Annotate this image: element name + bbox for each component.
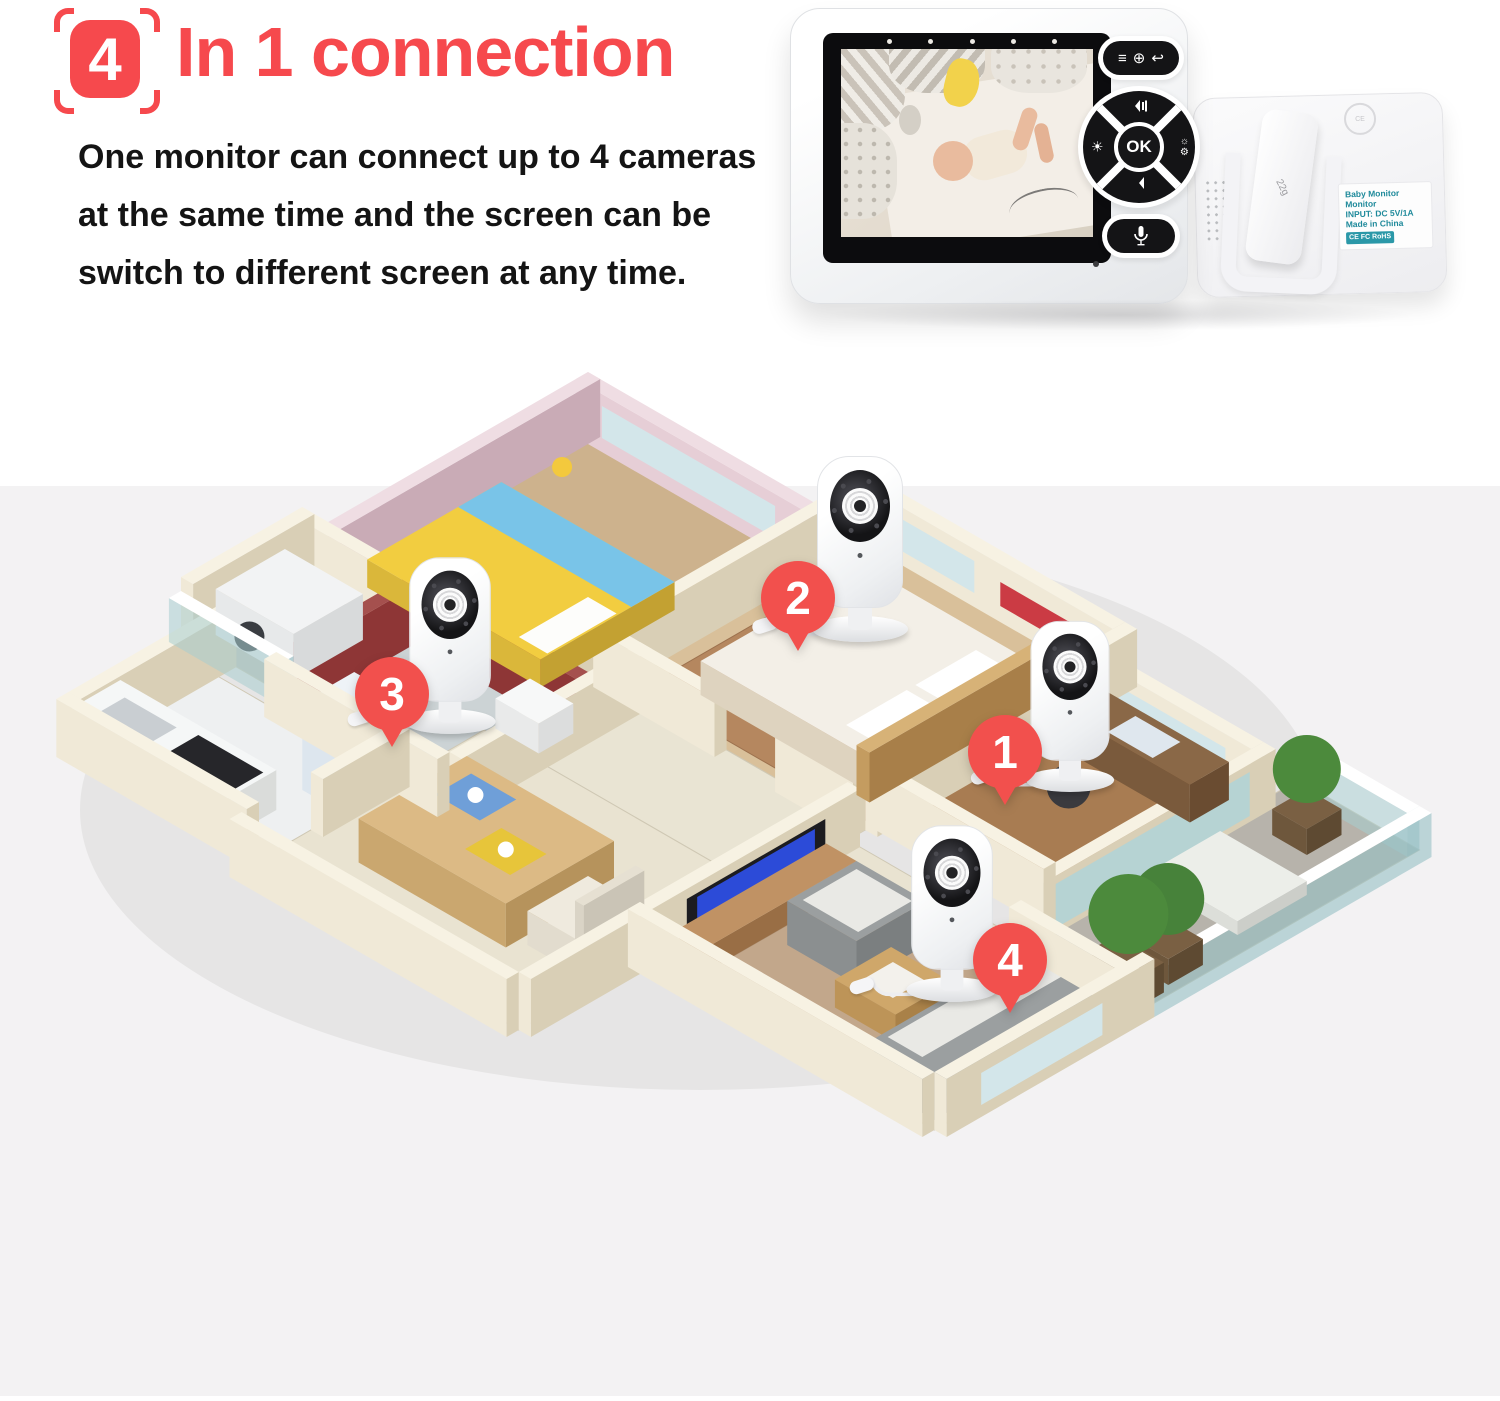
menu-icon: ≡ xyxy=(1118,51,1127,66)
microphone-icon xyxy=(1134,226,1148,246)
volume-up-icon[interactable] xyxy=(1129,99,1149,118)
dpad-control[interactable]: ☀ ☼⚙ OK xyxy=(1083,91,1195,203)
camera-body xyxy=(1030,621,1109,761)
plant-1 xyxy=(1273,735,1341,803)
camera-lens-ring xyxy=(830,470,890,542)
mic-hole xyxy=(1093,261,1099,267)
marker-number: 1 xyxy=(992,725,1018,779)
return-icon: ↩ xyxy=(1151,51,1164,66)
camera-mic-hole xyxy=(858,553,863,558)
marker-number: 2 xyxy=(785,571,811,625)
camera-lens-icon xyxy=(433,588,467,622)
page-title: In 1 connection xyxy=(176,12,674,92)
marker-pin-2: 2 xyxy=(761,561,835,635)
brightness-icon[interactable]: ☀ xyxy=(1091,139,1104,156)
description-line: switch to different screen at any time. xyxy=(78,244,818,302)
camera-lens-ring xyxy=(924,839,981,907)
menu-zoom-return-button[interactable]: ≡ ⊕ ↩ xyxy=(1103,41,1179,75)
screen-bezel xyxy=(823,33,1111,263)
camera-lens-icon xyxy=(935,856,969,890)
camera-lens-ring xyxy=(422,571,479,639)
marker-pin-3: 3 xyxy=(355,657,429,731)
description-line: One monitor can connect up to 4 cameras xyxy=(78,128,818,186)
volume-down-icon[interactable] xyxy=(1132,176,1146,195)
product-reflection xyxy=(800,298,1440,332)
camera-mic-hole xyxy=(1068,710,1073,715)
certification-marks: CE FC RoHS xyxy=(1346,231,1394,244)
marker-pin-4: 4 xyxy=(973,923,1047,997)
camera-lens-ring xyxy=(1042,634,1097,700)
monitor-front-view: ≡ ⊕ ↩ ☀ ☼⚙ OK xyxy=(790,8,1188,304)
four-camera-badge-icon: 4 xyxy=(60,12,152,108)
plant-3 xyxy=(1088,874,1168,954)
description-line: at the same time and the screen can be xyxy=(78,186,818,244)
camera-lens-icon xyxy=(1053,650,1086,683)
ok-button[interactable]: OK xyxy=(1114,122,1164,172)
baby-monitor-product: CE 22g Baby Monitor Monitor INPUT: DC 5V… xyxy=(780,0,1480,330)
toy-dog xyxy=(552,457,572,477)
product-label: Baby Monitor Monitor INPUT: DC 5V/1A Mad… xyxy=(1338,181,1434,250)
talk-button[interactable] xyxy=(1107,219,1175,253)
monitor-back-view: CE 22g Baby Monitor Monitor INPUT: DC 5V… xyxy=(1192,92,1447,298)
marker-pin-1: 1 xyxy=(968,715,1042,789)
camera-lens-icon xyxy=(842,488,878,524)
plate-2 xyxy=(498,842,514,858)
settings-icon[interactable]: ☼⚙ xyxy=(1180,136,1189,158)
zoom-icon: ⊕ xyxy=(1133,51,1146,66)
marker-number: 4 xyxy=(997,933,1023,987)
camera-mic-hole xyxy=(448,649,453,654)
certification-stamp: CE xyxy=(1344,103,1377,136)
badge-number: 4 xyxy=(70,20,140,98)
indicator-leds xyxy=(887,39,1057,44)
marker-number: 3 xyxy=(379,667,405,721)
description-text: One monitor can connect up to 4 cameras … xyxy=(78,128,818,302)
plate-1 xyxy=(467,787,483,803)
camera-mic-hole xyxy=(950,917,955,922)
screen-baby-video xyxy=(841,49,1093,237)
floorplan-illustration xyxy=(0,370,1500,1396)
